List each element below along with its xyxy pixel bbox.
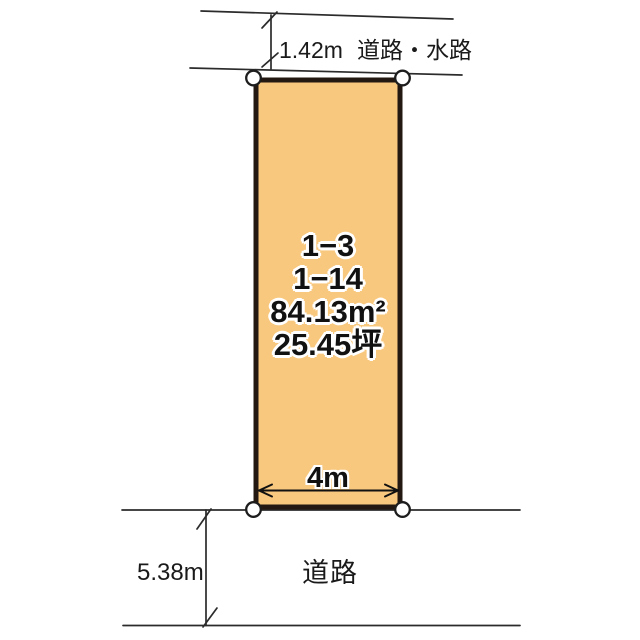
top-road-annotation: 1.42m 道路・水路 xyxy=(279,31,472,65)
corner-marker-bottom-right xyxy=(395,502,410,517)
top-dimension-tick-upper xyxy=(262,12,277,28)
bottom-dimension-tick-upper xyxy=(197,509,211,529)
bottom-road-distance: 5.38m xyxy=(137,559,203,587)
corner-marker-top-right xyxy=(395,71,410,86)
top-road-label: 道路・水路 xyxy=(357,31,472,65)
area-tsubo: 25.45坪 xyxy=(253,328,403,361)
frontage-distance: 4m xyxy=(253,462,403,495)
top-road-distance: 1.42m xyxy=(279,37,343,64)
area-square-meters: 84.13m² xyxy=(253,295,403,328)
corner-marker-top-left xyxy=(246,71,261,86)
top-dimension-tick-lower xyxy=(262,53,278,67)
land-plot-diagram: 1.42m 道路・水路 1−3 1−14 84.13m² 25.45坪 4m 5… xyxy=(0,0,640,640)
bottom-road-label: 道路 xyxy=(302,551,358,590)
bottom-dimension-tick-lower xyxy=(203,608,217,627)
top-road-upper-line xyxy=(201,11,453,19)
top-road-lower-line xyxy=(190,68,462,75)
plot-labels: 1−3 1−14 84.13m² 25.45坪 xyxy=(253,229,403,361)
lot-number-2: 1−14 xyxy=(253,262,403,295)
lot-number-1: 1−3 xyxy=(253,229,403,262)
corner-marker-bottom-left xyxy=(246,502,261,517)
